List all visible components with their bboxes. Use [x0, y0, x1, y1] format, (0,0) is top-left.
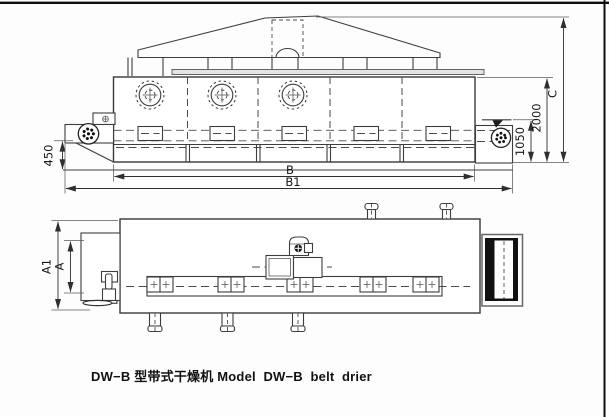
tray-pair: [147, 277, 173, 292]
duct-outlet-arc: [276, 49, 299, 58]
nozzle: [365, 204, 378, 220]
drive-pulley-pad: [83, 300, 112, 305]
plan-view: A1 A: [40, 204, 523, 332]
hood: [138, 16, 440, 58]
dim-label-A1: A1: [40, 259, 54, 274]
tray-pair: [413, 277, 439, 292]
tray-pair: [360, 277, 386, 292]
dimension-A: A: [53, 241, 85, 294]
feed-brace: [76, 143, 114, 162]
discharge-sprocket: [491, 128, 510, 147]
belt-drier-drawing: 450 B B1 1050 2000 C: [0, 0, 609, 417]
leg: [291, 313, 305, 332]
leg: [221, 313, 235, 332]
nozzle: [440, 204, 453, 220]
exhaust-duct: [272, 20, 303, 58]
dim-label-450: 450: [42, 145, 56, 167]
leg: [148, 313, 162, 332]
tray-pair: [218, 277, 244, 292]
dim-label-B1: B1: [285, 175, 300, 189]
side-elevation-view: 450 B B1 1050 2000 C: [42, 16, 570, 194]
dimension-450: 450: [42, 141, 74, 169]
discharge-end-assembly: [476, 120, 513, 163]
feed-sprocket: [78, 124, 98, 144]
plan-discharge-end: [482, 235, 523, 307]
drawing-caption: DW−B 型带式干燥机 Model DW−B belt drier: [91, 366, 372, 385]
motor-terminal-box: [305, 244, 313, 253]
technical-drawing-page: 450 B B1 1050 2000 C: [0, 0, 609, 417]
dim-label-C: C: [546, 90, 560, 98]
top-nozzles: [365, 204, 453, 220]
dim-label-2000: 2000: [530, 103, 544, 132]
plan-feed-end: [81, 233, 120, 306]
top-plate: [172, 70, 484, 75]
feed-end-assembly: [65, 113, 115, 162]
bolt-symbol: [103, 116, 109, 122]
page-edge-lines: [0, 0, 609, 417]
dim-label-A: A: [53, 262, 67, 270]
support-legs: [148, 313, 305, 332]
dim-label-1050: 1050: [513, 127, 527, 156]
